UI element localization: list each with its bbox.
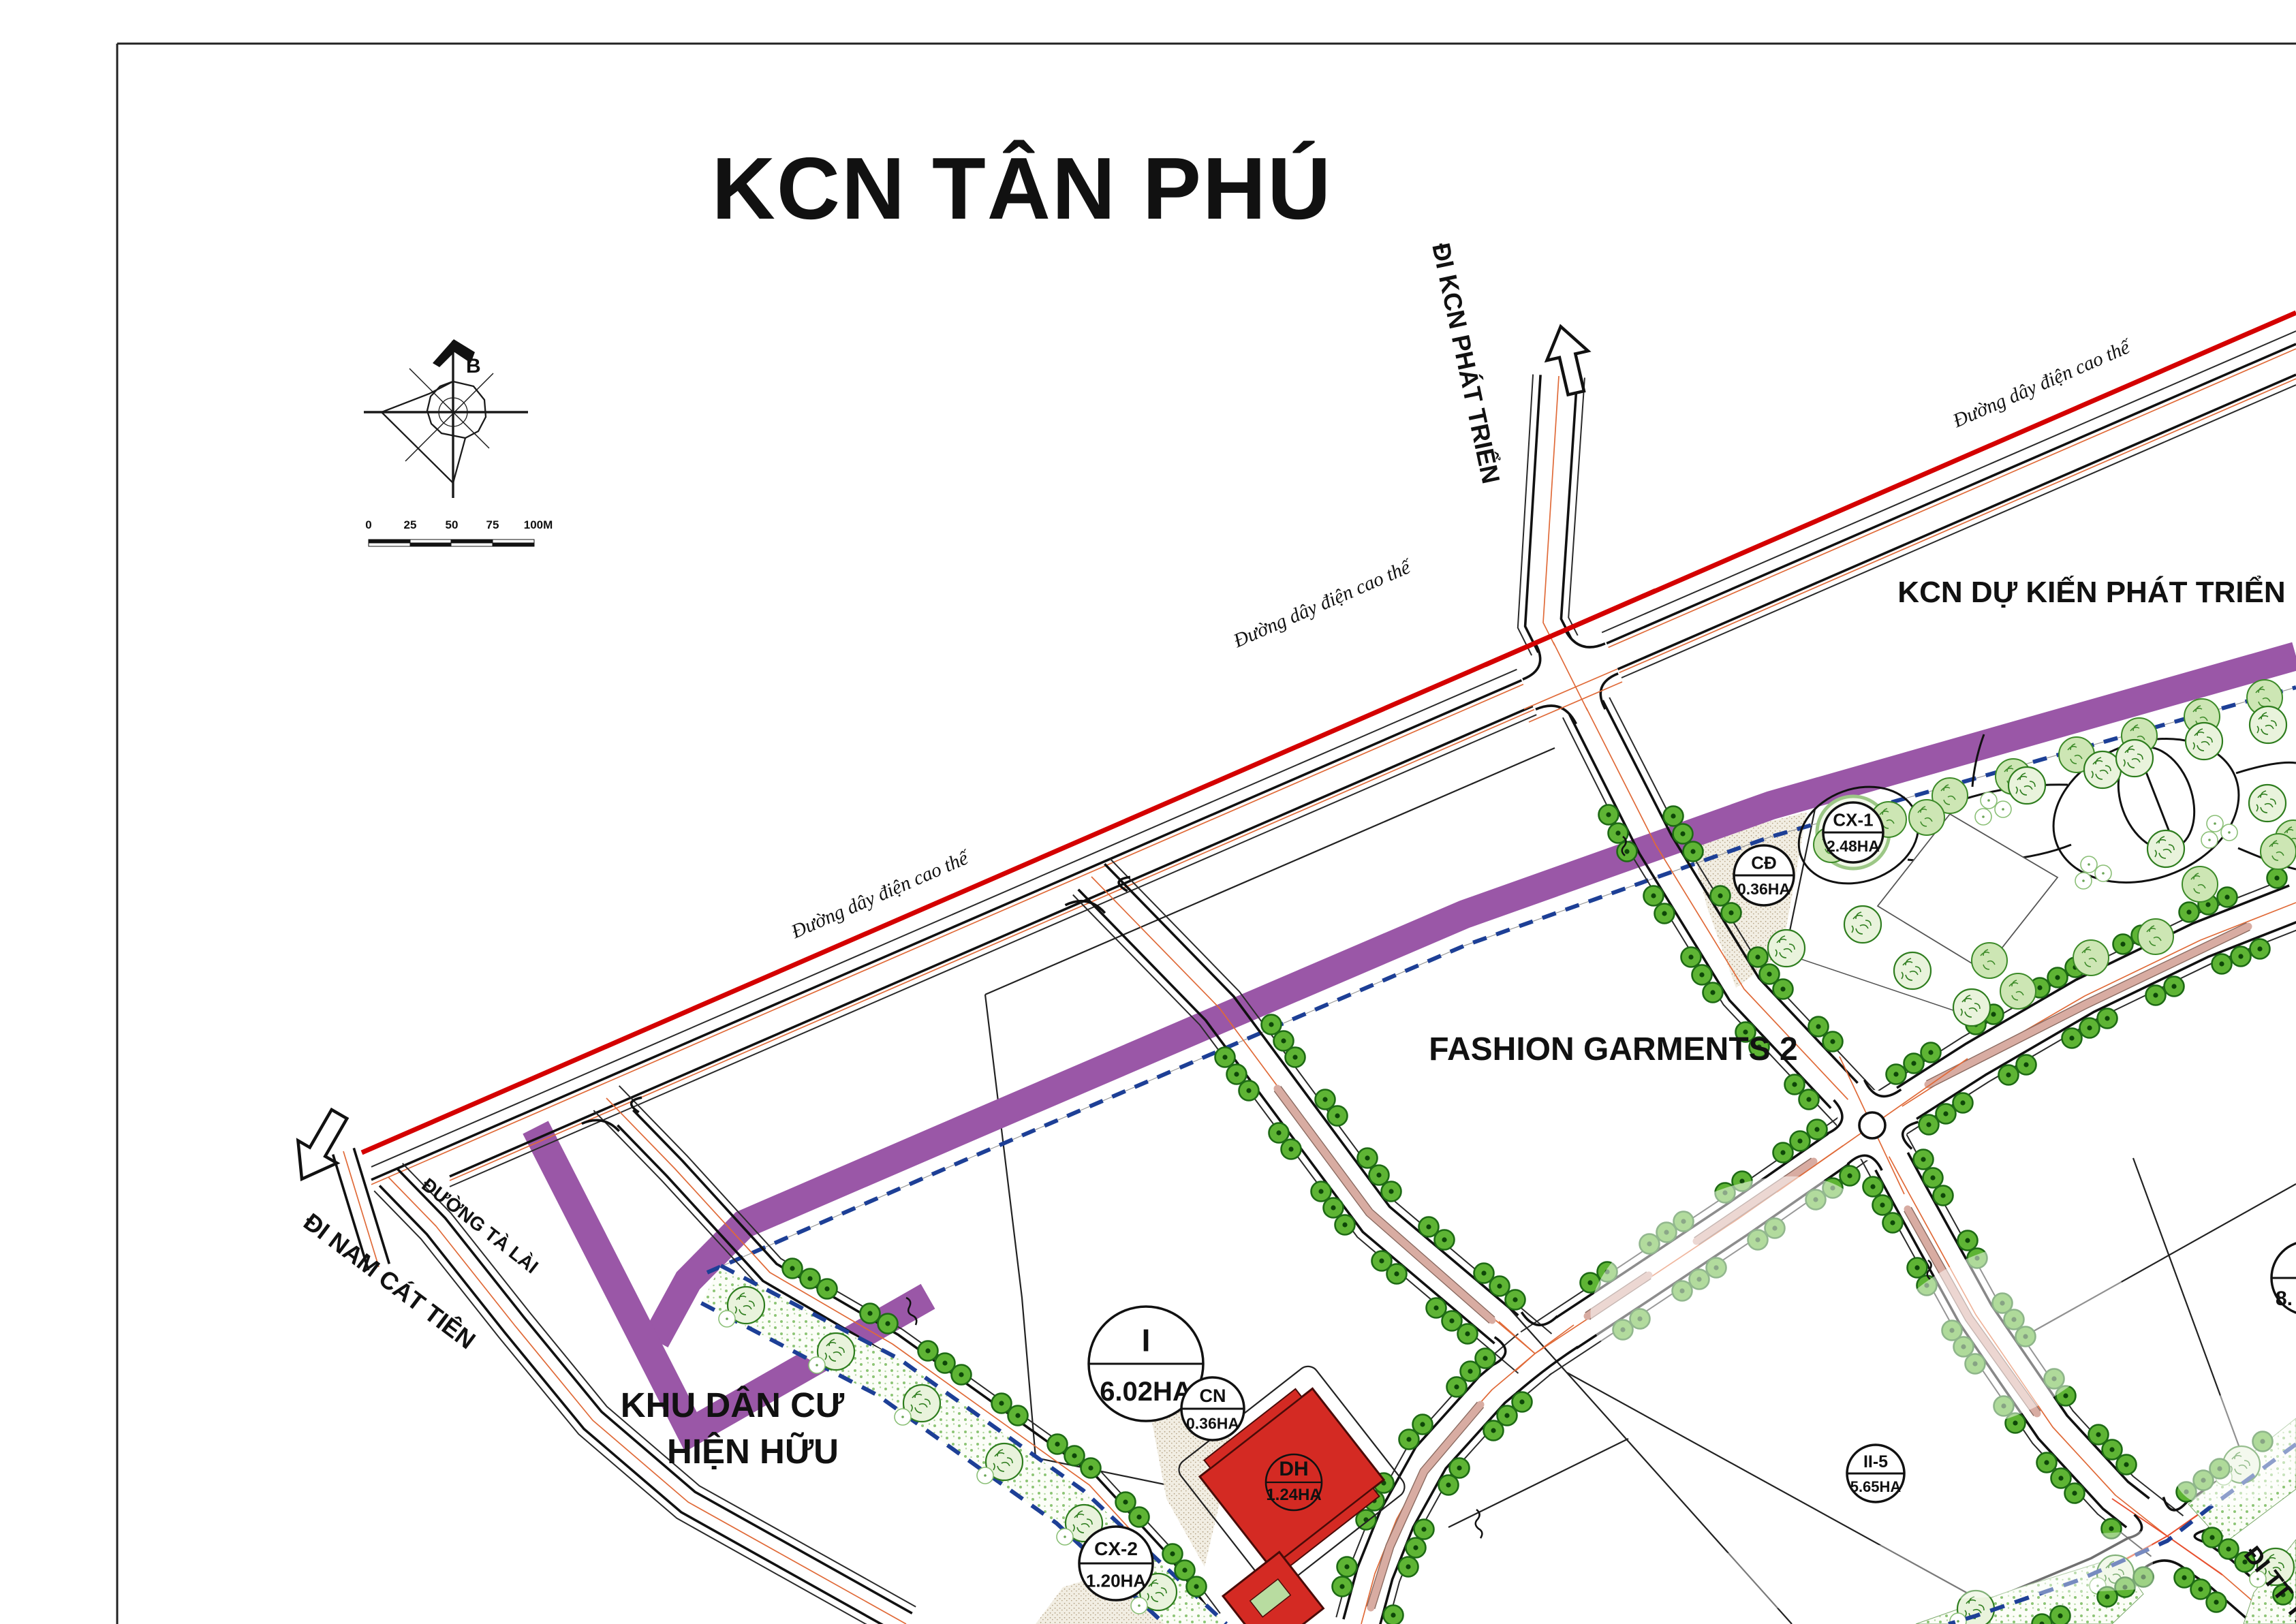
svg-text:5.65HA: 5.65HA — [1850, 1478, 1902, 1495]
svg-text:1.20HA: 1.20HA — [1086, 1571, 1146, 1591]
svg-text:KCN TÂN PHÚ: KCN TÂN PHÚ — [712, 139, 1333, 238]
svg-text:50: 50 — [446, 518, 459, 531]
svg-text:FASHION GARMENTS 2: FASHION GARMENTS 2 — [1429, 1031, 1797, 1067]
svg-text:CĐ: CĐ — [1751, 852, 1777, 873]
svg-text:HIỆN HỮU: HIỆN HỮU — [667, 1431, 839, 1471]
svg-text:2.48HA: 2.48HA — [1827, 837, 1880, 855]
svg-text:0.36HA: 0.36HA — [1737, 880, 1790, 898]
svg-text:B: B — [466, 355, 481, 377]
svg-text:75: 75 — [486, 518, 499, 531]
svg-text:DH: DH — [1279, 1458, 1308, 1480]
svg-text:I: I — [1142, 1323, 1151, 1358]
svg-text:II-5: II-5 — [1863, 1452, 1888, 1471]
svg-text:0: 0 — [365, 518, 371, 531]
svg-text:25: 25 — [404, 518, 417, 531]
svg-text:6.02HA: 6.02HA — [1100, 1377, 1192, 1407]
svg-text:KHU DÂN CƯ: KHU DÂN CƯ — [621, 1385, 845, 1424]
svg-text:CN: CN — [1200, 1386, 1226, 1406]
svg-text:100M: 100M — [524, 518, 553, 531]
svg-text:0.36HA: 0.36HA — [1186, 1414, 1239, 1432]
svg-text:1.24HA: 1.24HA — [1266, 1486, 1321, 1504]
svg-text:CX-1: CX-1 — [1833, 809, 1873, 830]
svg-text:CX-2: CX-2 — [1094, 1538, 1138, 1559]
svg-text:8.: 8. — [2276, 1287, 2293, 1310]
svg-text:KCN DỰ KIẾN PHÁT TRIỂN: KCN DỰ KIẾN PHÁT TRIỂN — [1897, 574, 2285, 609]
